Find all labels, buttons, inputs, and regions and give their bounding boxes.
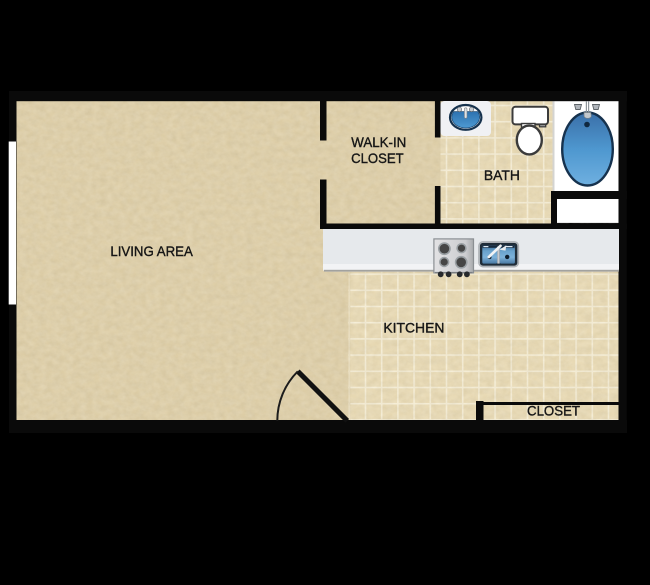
svg-text:BATH: BATH [484,168,520,184]
svg-text:WALK-IN: WALK-IN [351,135,406,151]
svg-text:LIVING AREA: LIVING AREA [110,244,193,260]
svg-text:CLOSET: CLOSET [351,151,404,167]
svg-text:CLOSET: CLOSET [527,404,580,420]
svg-text:KITCHEN: KITCHEN [383,320,444,336]
